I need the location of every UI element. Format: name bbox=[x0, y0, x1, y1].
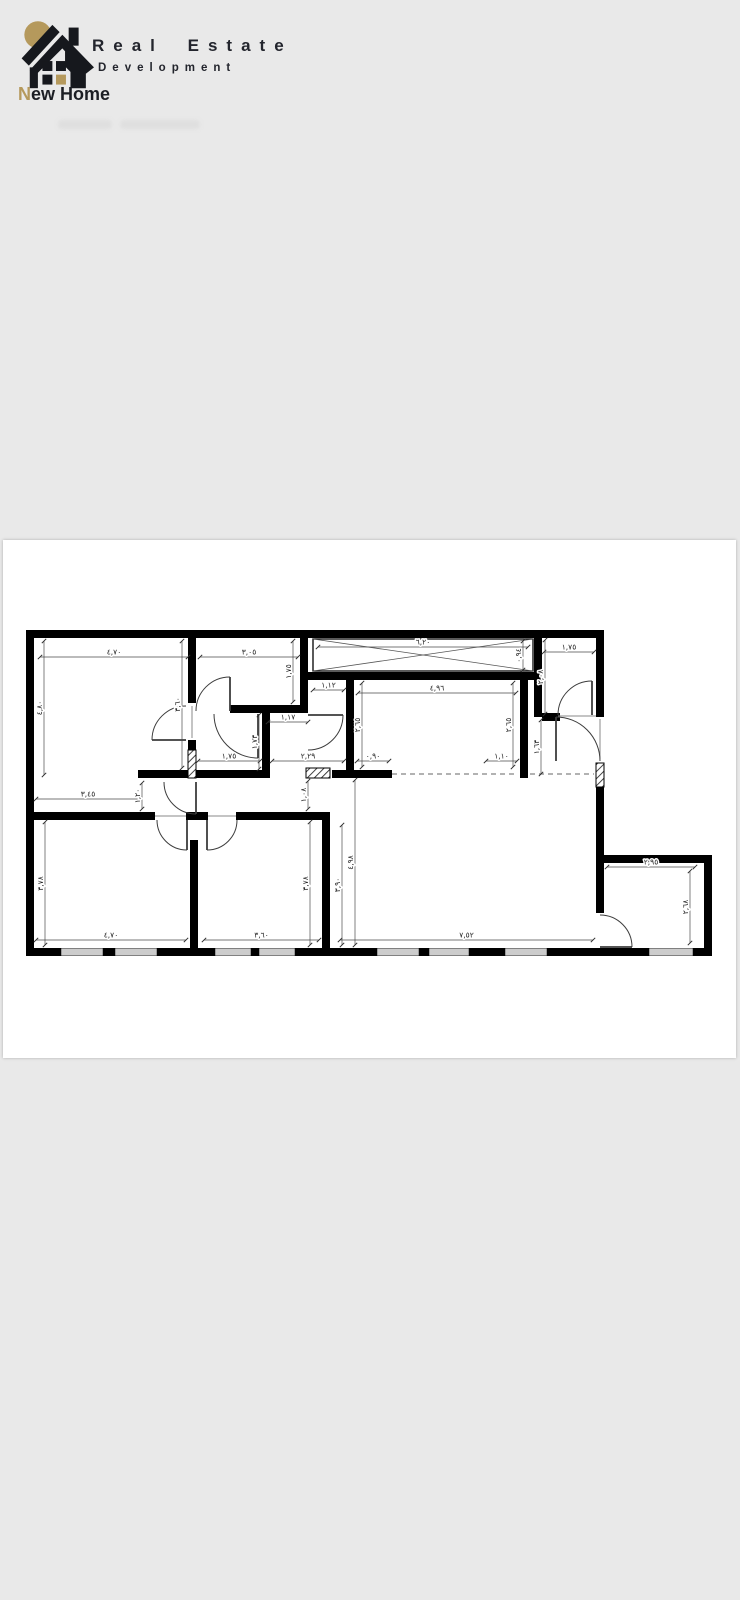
wall bbox=[308, 672, 534, 680]
column-hatch bbox=[306, 768, 330, 778]
double-door-arc bbox=[157, 820, 187, 850]
dimension-label: ٤,٨٠ bbox=[35, 701, 44, 715]
wall bbox=[300, 638, 308, 713]
double-door-arc bbox=[207, 820, 237, 850]
brand-rest: ew Home bbox=[31, 84, 110, 104]
wall bbox=[596, 630, 604, 717]
dimension-label: ١,١٠ bbox=[494, 752, 508, 761]
dimension-label: ٢,٠٨ bbox=[536, 670, 545, 684]
wall bbox=[188, 638, 196, 703]
wall bbox=[138, 770, 266, 778]
dimension-label: ١,٧٥ bbox=[562, 643, 576, 652]
dimension-label: ٠,٩٠ bbox=[366, 752, 380, 761]
brand-initial: N bbox=[18, 84, 31, 104]
dimension-label: ٣,٦٠ bbox=[254, 931, 268, 940]
window bbox=[648, 948, 694, 956]
column-hatch bbox=[188, 750, 196, 778]
dimension-label: ١,١٧ bbox=[281, 713, 295, 722]
dimension-label: ١,٦٣ bbox=[532, 740, 541, 754]
door-arcs bbox=[152, 677, 632, 947]
door-arc bbox=[558, 681, 592, 715]
dimension-label: ١,١٢ bbox=[321, 681, 335, 690]
dimension-label: ٢,٦٥ bbox=[353, 718, 362, 732]
wall bbox=[190, 840, 198, 956]
door-arc bbox=[600, 915, 632, 947]
dimension-label: ٢,٦٥ bbox=[504, 718, 513, 732]
floor-plan: ٤,٧٠٣,٠٥٦,٢٠١,٧٥١,١٢٤,٩٦١,١٧١,٧٥٢,٢٩٠,٩٠… bbox=[0, 540, 740, 1060]
window bbox=[376, 948, 420, 956]
window bbox=[214, 948, 252, 956]
brand-name: New Home bbox=[18, 84, 110, 105]
dimension-label: ٢,٦٨ bbox=[681, 900, 690, 914]
logo-subtitle: Development bbox=[98, 62, 236, 74]
wall bbox=[26, 812, 155, 820]
wall bbox=[322, 812, 330, 956]
dimension-label: ٣,٦٠ bbox=[173, 697, 182, 711]
walls bbox=[26, 630, 712, 956]
window bbox=[114, 948, 158, 956]
dimension-label: ٤,٩٦ bbox=[430, 684, 444, 693]
dimension-label: ٤,٩٨ bbox=[346, 855, 355, 869]
wall bbox=[230, 705, 308, 713]
window bbox=[60, 948, 104, 956]
house-icon bbox=[18, 12, 94, 92]
window bbox=[258, 948, 296, 956]
wall bbox=[704, 855, 712, 956]
company-logo: Real Estate Development New Home bbox=[14, 10, 414, 120]
dimension-label: ٠,٩٤ bbox=[514, 648, 523, 662]
entrance-door-arc bbox=[556, 717, 600, 761]
dimension-label: ٤,٧٠ bbox=[107, 648, 121, 657]
door-arc bbox=[196, 677, 230, 711]
wall bbox=[26, 630, 34, 956]
dimension-label: ٣,٧٨ bbox=[36, 876, 45, 890]
door-arc bbox=[164, 782, 196, 814]
wall bbox=[236, 812, 330, 820]
columns bbox=[188, 750, 604, 787]
dimension-label: ٣,٠٥ bbox=[242, 648, 256, 657]
dimension-label: ١,٢٠ bbox=[133, 789, 142, 803]
door-arc bbox=[308, 715, 343, 750]
logo-title: Real Estate bbox=[92, 36, 293, 56]
dimension-label: ٣,٤٥ bbox=[81, 790, 95, 799]
window bbox=[428, 948, 470, 956]
page: Real Estate Development New Home bbox=[0, 0, 740, 1600]
dimension-label: ١,٧٥ bbox=[284, 664, 293, 678]
watermark bbox=[58, 120, 218, 134]
dimension-label: ١,٠٨ bbox=[299, 788, 308, 802]
column-hatch bbox=[596, 763, 604, 787]
dimension-label: ١,٧٣ bbox=[250, 735, 259, 749]
dimension-label: ٤,٧٠ bbox=[104, 931, 118, 940]
wall bbox=[26, 630, 604, 638]
dimension-label: ٣,٩٠ bbox=[333, 878, 342, 892]
dimension-label: ٢,٩٥ bbox=[644, 858, 658, 867]
dimension-label: ٢,٢٩ bbox=[301, 752, 315, 761]
dimension-label: ٦,٢٠ bbox=[416, 638, 430, 647]
dimension-label: ١,٧٥ bbox=[222, 752, 236, 761]
dimension-label: ٧,٥٢ bbox=[459, 931, 473, 940]
wall bbox=[596, 863, 604, 913]
wall bbox=[596, 787, 604, 862]
window bbox=[504, 948, 548, 956]
wall bbox=[332, 770, 392, 778]
wall bbox=[520, 680, 528, 778]
dimension-label: ٣,٧٨ bbox=[301, 876, 310, 890]
